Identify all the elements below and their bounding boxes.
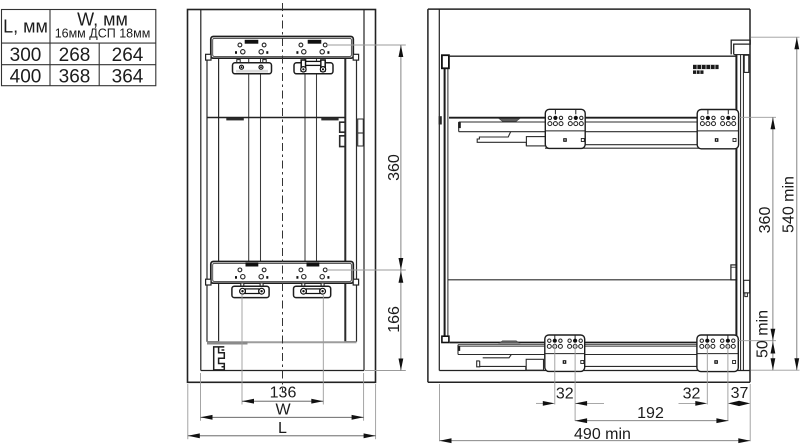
svg-text:540 min: 540 min bbox=[780, 176, 797, 233]
svg-text:L, мм: L, мм bbox=[3, 17, 48, 37]
svg-text:32: 32 bbox=[683, 385, 701, 402]
svg-text:264: 264 bbox=[112, 45, 144, 66]
svg-text:166: 166 bbox=[386, 306, 403, 333]
svg-text:268: 268 bbox=[59, 45, 91, 66]
svg-text:192: 192 bbox=[637, 405, 664, 422]
svg-text:32: 32 bbox=[556, 385, 574, 402]
svg-text:136: 136 bbox=[270, 385, 297, 402]
svg-text:400: 400 bbox=[10, 66, 42, 87]
svg-text:50 min: 50 min bbox=[754, 310, 771, 358]
svg-text:37: 37 bbox=[731, 385, 749, 402]
svg-text:360: 360 bbox=[757, 207, 774, 234]
svg-text:368: 368 bbox=[59, 66, 91, 87]
svg-text:360: 360 bbox=[386, 154, 403, 181]
svg-text:L: L bbox=[278, 420, 287, 437]
svg-text:W: W bbox=[275, 402, 291, 419]
svg-text:16мм ДСП 18мм: 16мм ДСП 18мм bbox=[55, 27, 151, 41]
svg-text:364: 364 bbox=[112, 66, 144, 87]
svg-text:300: 300 bbox=[10, 45, 42, 66]
